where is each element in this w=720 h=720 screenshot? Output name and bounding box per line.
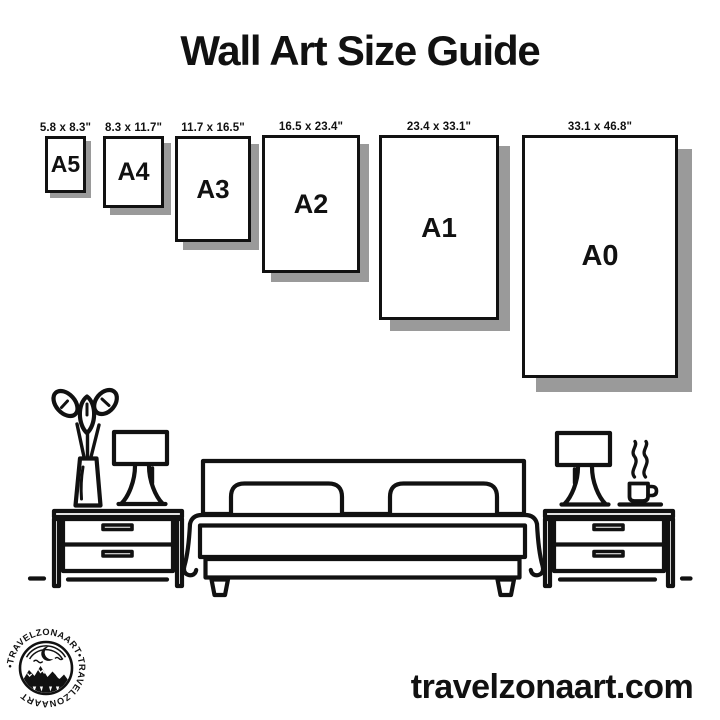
size-frame-a5: 5.8 x 8.3" A5 [45,136,86,193]
size-frame-a4: 8.3 x 11.7" A4 [103,136,164,208]
size-dims-label: 16.5 x 23.4" [279,121,343,133]
bedroom-illustration [0,380,720,605]
steam-icon [633,442,647,478]
size-code-label: A1 [421,212,457,244]
bed-icon [184,461,543,595]
size-dims-label: 5.8 x 8.3" [40,122,91,134]
coffee-cup-icon [620,442,662,505]
pillow-left [231,484,342,515]
size-dims-label: 11.7 x 16.5" [181,122,245,134]
size-code-label: A5 [51,151,80,178]
size-frame-a0: 33.1 x 46.8" A0 [522,135,678,378]
lamp-left-icon [114,432,167,504]
brand-logo: •TRAVELZONAART•TRAVELZONAART [2,624,90,712]
size-code-label: A0 [581,240,618,273]
size-frame-a2: 16.5 x 23.4" A2 [262,135,360,273]
lamp-right-icon [557,433,610,505]
size-guide-page: Wall Art Size Guide 5.8 x 8.3" A5 8.3 x … [0,0,720,720]
plant-icon [49,386,122,506]
size-frame-a1: 23.4 x 33.1" A1 [379,135,499,320]
pillow-right [390,484,497,515]
page-title: Wall Art Size Guide [0,27,720,75]
size-code-label: A2 [294,189,329,220]
size-dims-label: 33.1 x 46.8" [568,121,632,133]
website-text: travelzonaart.com [400,668,704,707]
size-dims-label: 8.3 x 11.7" [105,122,162,134]
size-dims-label: 23.4 x 33.1" [407,121,471,133]
nightstand-left-icon [54,511,182,586]
nightstand-right-icon [545,511,673,586]
size-frame-a3: 11.7 x 16.5" A3 [175,136,251,242]
size-code-label: A4 [118,158,150,187]
size-code-label: A3 [196,174,229,205]
